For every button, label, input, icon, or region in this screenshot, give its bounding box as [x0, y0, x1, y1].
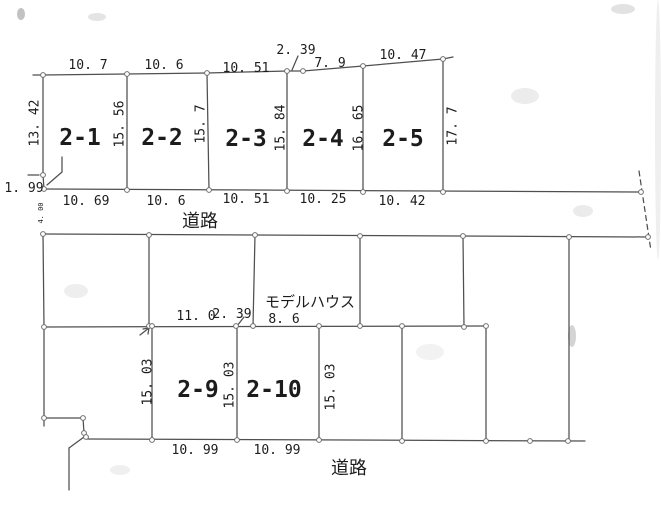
vertex-marker [41, 173, 46, 178]
vertex-marker [400, 439, 405, 444]
drawing-background [0, 0, 661, 505]
plot-label-2-5: 2-5 [382, 126, 424, 152]
dim-depth-2-9-right: 15. 03 [223, 362, 238, 409]
survey-drawing-page: 10. 710. 610. 512. 397. 910. 4713. 4215.… [0, 0, 661, 505]
vertex-marker [528, 439, 533, 444]
vertex-marker [301, 69, 306, 74]
dim-mid-11-0: 11. 0 [176, 309, 215, 324]
dim-depth-2-5: 17. 7 [446, 106, 461, 145]
vertex-marker [400, 324, 405, 329]
scan-smudge-2 [611, 4, 635, 14]
dim-depth-2-2: 15. 7 [194, 104, 209, 143]
vertex-marker [361, 190, 366, 195]
vertex-marker [42, 325, 47, 330]
dim-top-2-3: 10. 51 [223, 61, 270, 76]
plot-label-2-9: 2-9 [177, 377, 219, 403]
scan-smudge-5 [64, 284, 88, 298]
vertex-marker [147, 233, 152, 238]
dim-mid-2-39: 2. 39 [212, 307, 251, 322]
vertex-marker [441, 57, 446, 62]
model-house-label: モデルハウス [265, 293, 355, 311]
vertex-marker [253, 233, 258, 238]
vertex-marker [84, 435, 89, 440]
vertex-marker [81, 416, 86, 421]
dim-road-width: 4. 00 [37, 202, 45, 223]
vertex-marker [462, 325, 467, 330]
dim-left-west: 13. 42 [28, 100, 43, 147]
plot-label-2-1: 2-1 [59, 125, 101, 151]
dim-bottom-2-1: 10. 69 [63, 194, 110, 209]
dim-bottom-2-4: 10. 25 [300, 192, 347, 207]
vertex-marker [567, 235, 572, 240]
dim-top-jog: 2. 39 [276, 43, 315, 58]
survey-drawing: 10. 710. 610. 512. 397. 910. 4713. 4215.… [0, 0, 661, 505]
dim-top-2-4: 7. 9 [314, 56, 345, 71]
scan-smudge-6 [416, 344, 444, 360]
vertex-marker [125, 72, 130, 77]
vertex-marker [150, 324, 155, 329]
plot-label-2-10: 2-10 [246, 377, 301, 403]
dim-depth-2-4: 16. 65 [352, 105, 367, 152]
vertex-marker [317, 324, 322, 329]
dim-bottom-2-5: 10. 42 [379, 194, 426, 209]
dim-bottom-2-2: 10. 6 [146, 194, 185, 209]
vertex-marker [441, 190, 446, 195]
vertex-marker [125, 188, 130, 193]
dim-bottom-2-10: 10. 99 [254, 443, 301, 458]
dim-depth-2-3: 15. 84 [274, 104, 289, 151]
dim-top-2-2: 10. 6 [144, 58, 183, 73]
plot-label-2-2: 2-2 [141, 125, 183, 151]
vertex-marker [41, 73, 46, 78]
vertex-marker [150, 438, 155, 443]
scan-smudge-1 [88, 13, 106, 21]
scan-smudge-3 [511, 88, 539, 104]
vertex-marker [646, 235, 651, 240]
vertex-marker [358, 324, 363, 329]
scan-speck-topleft [17, 8, 25, 20]
dim-left-1-99: 1. 99 [4, 181, 43, 196]
vertex-marker [461, 234, 466, 239]
vertex-marker [285, 69, 290, 74]
scan-smudge-7 [110, 465, 130, 475]
vertex-marker [358, 234, 363, 239]
scan-smudge-4 [573, 205, 593, 217]
dim-depth-2-10-right: 15. 03 [324, 364, 339, 411]
dim-bottom-2-9: 10. 99 [172, 443, 219, 458]
vertex-marker [235, 438, 240, 443]
dim-mid-8-6: 8. 6 [268, 312, 299, 327]
dim-bottom-2-3: 10. 51 [223, 192, 270, 207]
road-label-top: 道路 [182, 211, 218, 232]
vertex-marker [361, 64, 366, 69]
scan-edge-band-right [655, 0, 661, 260]
road-label-bottom: 道路 [331, 458, 367, 479]
vertex-marker [484, 324, 489, 329]
dim-depth-2-9-left: 15. 03 [141, 359, 156, 406]
plot-label-2-4: 2-4 [302, 126, 344, 152]
vertex-marker [42, 416, 47, 421]
vertex-marker [484, 439, 489, 444]
vertex-marker [566, 439, 571, 444]
vertex-marker [285, 189, 290, 194]
plot-label-2-3: 2-3 [225, 126, 267, 152]
dim-top-2-1: 10. 7 [68, 58, 107, 73]
vertex-marker [205, 71, 210, 76]
dim-depth-2-1: 15. 56 [113, 101, 128, 148]
vertex-marker [234, 324, 239, 329]
vertex-marker [639, 190, 644, 195]
vertex-marker [317, 438, 322, 443]
vertex-marker [251, 324, 256, 329]
dim-top-2-5: 10. 47 [380, 48, 427, 63]
vertex-marker [41, 232, 46, 237]
vertex-marker [207, 188, 212, 193]
